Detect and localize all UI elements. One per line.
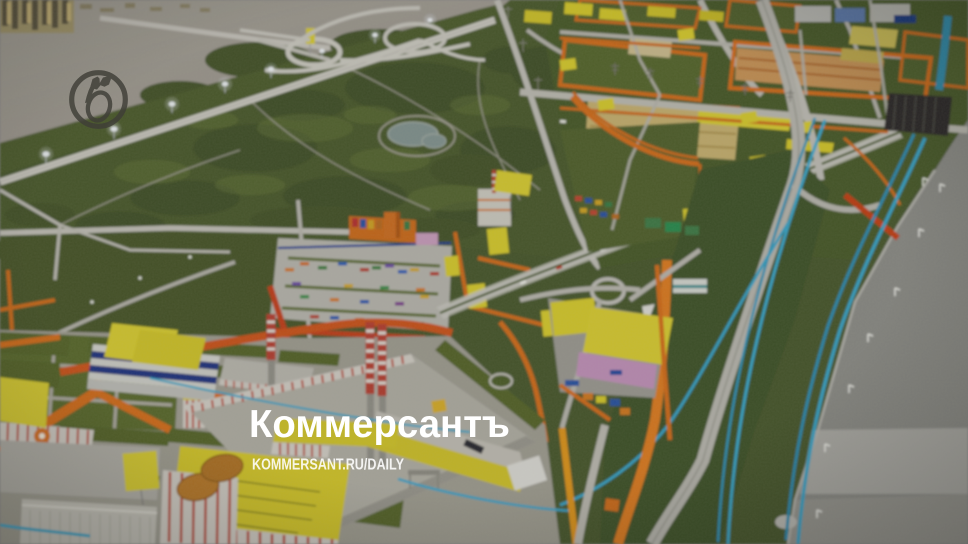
svg-text:Коммерсантъ: Коммерсантъ	[249, 403, 510, 446]
svg-text:KOMMERSANT.RU/DAILY: KOMMERSANT.RU/DAILY	[252, 457, 404, 474]
